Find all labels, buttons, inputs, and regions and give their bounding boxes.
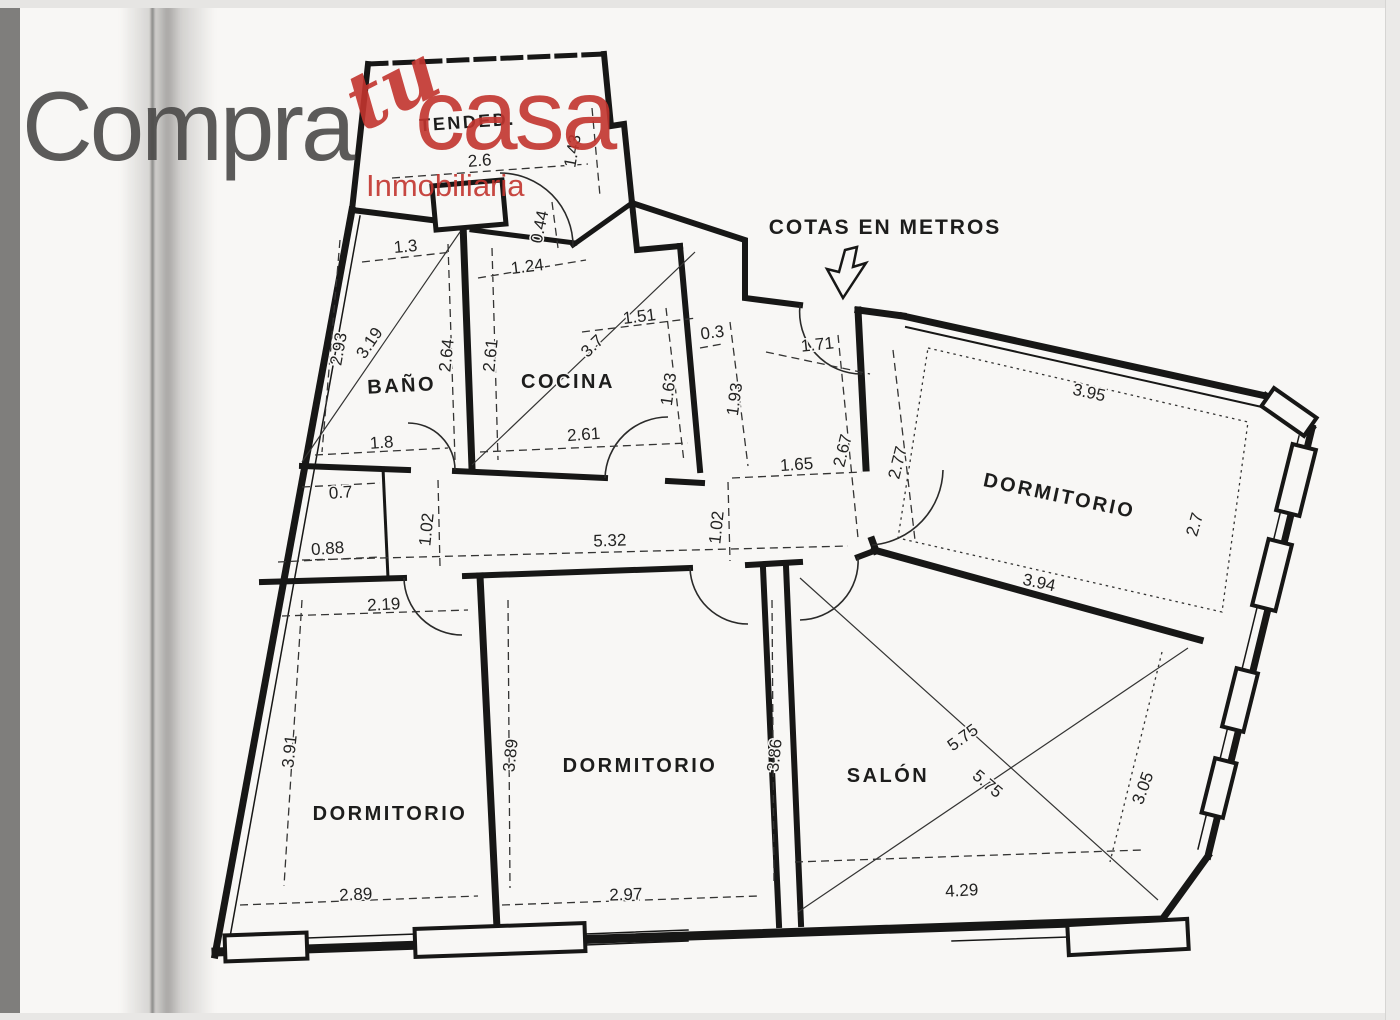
wall-corridor-top xyxy=(302,466,702,483)
window-south-2 xyxy=(1067,919,1188,955)
dim-label: 2.61 xyxy=(479,338,501,373)
wall-salon-dorm-divider xyxy=(874,550,1200,640)
scanned-floorplan-page: COTAS EN METROS TENDED. BAÑO COCINA DORM… xyxy=(0,0,1400,1020)
cotas-note: COTAS EN METROS xyxy=(769,216,1002,239)
scan-edge-top xyxy=(0,0,1400,8)
room-label-salon: SALÓN xyxy=(847,763,930,787)
dim-label: 0.3 xyxy=(699,322,725,344)
room-label-dormitorio-left: DORMITORIO xyxy=(313,803,468,825)
dim-label: 5.75 xyxy=(944,720,982,755)
scan-edge-bottom xyxy=(0,1013,1400,1020)
dim-label: 2.64 xyxy=(435,338,457,373)
dim-label: 1.93 xyxy=(723,382,746,417)
door-arc-dorm-mid xyxy=(690,568,748,624)
door-arc-salon xyxy=(800,557,858,620)
dim-label: 5.32 xyxy=(593,530,627,550)
dim-label: 3.86 xyxy=(763,738,785,773)
wall-corridor-bottom xyxy=(262,551,874,582)
logo-word-casa: casa xyxy=(415,58,614,173)
room-label-dormitorio-mid: DORMITORIO xyxy=(563,755,718,777)
dim-label: 1.8 xyxy=(369,432,394,453)
dim-label: 5.75 xyxy=(969,766,1007,802)
dim-label: 3.05 xyxy=(1128,769,1157,807)
dim-label: 3.89 xyxy=(499,738,521,773)
room-label-dormitorio-ne: DORMITORIO xyxy=(981,469,1137,523)
scan-edge-left xyxy=(0,0,20,1020)
down-arrow-icon xyxy=(827,247,866,298)
logo-tagline: Inmobiliaria xyxy=(366,168,525,204)
dim-label: 2.77 xyxy=(884,444,910,481)
dim-label: 0.88 xyxy=(310,538,344,559)
window-northeast xyxy=(1261,388,1316,436)
window-south-corner xyxy=(225,933,308,962)
door-arc-dorm-left xyxy=(404,578,462,635)
scan-edge-right xyxy=(1385,0,1400,1020)
dim-label: 4.29 xyxy=(945,880,979,901)
dim-label: 1.3 xyxy=(393,236,418,257)
dim-label: 3.19 xyxy=(352,324,386,362)
wall-dorm-divider xyxy=(480,576,497,928)
dim-label: 2.97 xyxy=(609,884,643,904)
logo-word-compra: Compra xyxy=(22,70,353,183)
dim-label: 1.02 xyxy=(705,510,727,545)
wall-cocina-east xyxy=(680,246,700,470)
window-south-1 xyxy=(415,923,586,957)
wall-closet-stub xyxy=(383,468,388,578)
dim-label: 1.71 xyxy=(800,333,835,355)
dim-label: 1.24 xyxy=(510,255,545,278)
window-east-4 xyxy=(1202,758,1237,818)
room-label-bano: BAÑO xyxy=(367,372,437,399)
dim-label: 2.61 xyxy=(566,424,600,445)
dim-label: 1.51 xyxy=(622,305,657,328)
dim-label: 2.67 xyxy=(829,432,855,469)
dim-label: 0.7 xyxy=(328,482,353,503)
dim-label: 3.91 xyxy=(278,734,300,769)
wall-north-dorm xyxy=(858,310,1266,551)
dim-label: 3.7 xyxy=(577,331,607,361)
dim-label: 2.19 xyxy=(367,594,401,615)
window-east-3 xyxy=(1222,668,1258,732)
dim-label: 3.95 xyxy=(1071,380,1107,405)
dim-label: 1.65 xyxy=(779,454,813,475)
dim-lines-dashed xyxy=(240,108,1142,905)
window-east-1 xyxy=(1276,444,1316,516)
dim-label: 2.89 xyxy=(339,884,373,905)
dim-label: 1.02 xyxy=(415,512,437,547)
door-arc-bano xyxy=(408,423,455,470)
dim-label: 2.7 xyxy=(1182,511,1207,539)
window-east-2 xyxy=(1252,539,1292,611)
wall-bano-cocina-divider xyxy=(463,224,472,468)
room-label-cocina: COCINA xyxy=(521,371,615,393)
door-arc-cocina xyxy=(605,417,668,478)
